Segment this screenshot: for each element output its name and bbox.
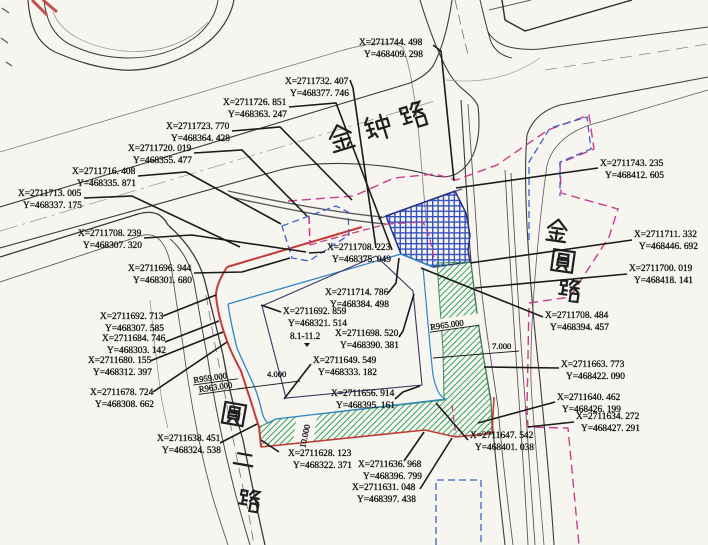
svg-text:X=2711708. 484: X=2711708. 484 bbox=[545, 311, 609, 321]
svg-text:X=2711732. 407: X=2711732. 407 bbox=[285, 77, 349, 87]
svg-text:X=2711684. 746: X=2711684. 746 bbox=[102, 334, 166, 344]
svg-text:Y=468322. 371: Y=468322. 371 bbox=[293, 461, 352, 471]
svg-text:X=2711680. 155: X=2711680. 155 bbox=[88, 356, 152, 366]
svg-text:4.000: 4.000 bbox=[267, 369, 286, 379]
svg-text:X=2711692. 713: X=2711692. 713 bbox=[100, 312, 164, 322]
svg-text:Y=468394. 457: Y=468394. 457 bbox=[550, 323, 609, 333]
svg-text:Y=468307. 585: Y=468307. 585 bbox=[105, 324, 164, 334]
svg-text:X=2711692. 859: X=2711692. 859 bbox=[283, 307, 347, 317]
svg-text:Y=468377. 746: Y=468377. 746 bbox=[290, 89, 349, 99]
svg-text:X=2711649. 549: X=2711649. 549 bbox=[313, 356, 377, 366]
svg-text:Y=468312. 397: Y=468312. 397 bbox=[93, 368, 152, 378]
svg-text:Y=468422. 090: Y=468422. 090 bbox=[566, 372, 625, 382]
svg-text:X=2711678. 724: X=2711678. 724 bbox=[90, 388, 154, 398]
svg-text:X=2711720. 019: X=2711720. 019 bbox=[128, 144, 192, 154]
svg-text:Y=468355. 477: Y=468355. 477 bbox=[133, 156, 192, 166]
svg-text:Y=468301. 680: Y=468301. 680 bbox=[133, 276, 192, 286]
svg-text:Y=468321. 514: Y=468321. 514 bbox=[288, 319, 347, 329]
svg-text:Y=468308. 662: Y=468308. 662 bbox=[95, 400, 154, 410]
svg-text:X=2711708. 223: X=2711708. 223 bbox=[327, 243, 391, 253]
svg-text:Y=468395. 161: Y=468395. 161 bbox=[336, 401, 395, 411]
svg-text:Y=468397. 438: Y=468397. 438 bbox=[357, 495, 416, 505]
svg-text:X=2711638. 451: X=2711638. 451 bbox=[157, 434, 221, 444]
svg-text:X=2711716. 408: X=2711716. 408 bbox=[72, 167, 136, 177]
svg-text:Y=468396. 799: Y=468396. 799 bbox=[363, 472, 422, 482]
svg-text:X=2711708. 239: X=2711708. 239 bbox=[78, 229, 142, 239]
svg-text:X=2711714. 786: X=2711714. 786 bbox=[325, 288, 389, 298]
svg-text:Y=468390. 381: Y=468390. 381 bbox=[340, 341, 399, 351]
svg-text:X=2711723. 770: X=2711723. 770 bbox=[166, 122, 230, 132]
svg-text:X=2711656. 914: X=2711656. 914 bbox=[331, 389, 395, 399]
svg-text:Y=468335. 871: Y=468335. 871 bbox=[77, 179, 136, 189]
svg-text:Y=468409. 298: Y=468409. 298 bbox=[364, 50, 423, 60]
svg-text:X=2711698. 520: X=2711698. 520 bbox=[335, 329, 399, 339]
svg-text:7.000: 7.000 bbox=[492, 341, 511, 351]
svg-text:Y=468418. 141: Y=468418. 141 bbox=[634, 276, 693, 286]
svg-text:Y=468375. 049: Y=468375. 049 bbox=[332, 255, 391, 265]
svg-text:X=2711631. 048: X=2711631. 048 bbox=[352, 483, 416, 493]
svg-text:X=2711711. 332: X=2711711. 332 bbox=[634, 230, 697, 240]
svg-text:Y=468333. 182: Y=468333. 182 bbox=[318, 368, 377, 378]
svg-text:X=2711744. 498: X=2711744. 498 bbox=[359, 38, 423, 48]
svg-text:Y=468427. 291: Y=468427. 291 bbox=[581, 424, 640, 434]
svg-text:X=2711640. 462: X=2711640. 462 bbox=[557, 393, 621, 403]
svg-text:Y=468364. 428: Y=468364. 428 bbox=[171, 134, 230, 144]
svg-text:Y=468307. 320: Y=468307. 320 bbox=[83, 241, 142, 251]
svg-text:X=2711696. 944: X=2711696. 944 bbox=[128, 264, 192, 274]
svg-text:X=2711713. 005: X=2711713. 005 bbox=[18, 189, 82, 199]
svg-text:Y=468401. 038: Y=468401. 038 bbox=[475, 443, 534, 453]
svg-text:Y=468363. 247: Y=468363. 247 bbox=[228, 110, 287, 120]
svg-text:Y=468446. 692: Y=468446. 692 bbox=[639, 242, 698, 252]
svg-text:Y=468324. 538: Y=468324. 538 bbox=[162, 446, 221, 456]
svg-text:X=2711700. 019: X=2711700. 019 bbox=[629, 264, 693, 274]
svg-text:X=2711647. 542: X=2711647. 542 bbox=[470, 431, 534, 441]
svg-text:Y=468412. 605: Y=468412. 605 bbox=[605, 171, 664, 181]
svg-text:X=2711628. 123: X=2711628. 123 bbox=[288, 449, 352, 459]
svg-text:Y=468337. 175: Y=468337. 175 bbox=[23, 201, 82, 211]
svg-text:8.1-11.2: 8.1-11.2 bbox=[290, 331, 321, 341]
svg-text:Y=468303. 142: Y=468303. 142 bbox=[107, 346, 166, 356]
svg-text:X=2711634. 272: X=2711634. 272 bbox=[576, 412, 640, 422]
svg-text:X=2711663. 773: X=2711663. 773 bbox=[561, 360, 625, 370]
svg-text:X=2711743. 235: X=2711743. 235 bbox=[600, 159, 664, 169]
svg-text:X=2711726. 851: X=2711726. 851 bbox=[223, 98, 287, 108]
svg-text:X=2711636. 968: X=2711636. 968 bbox=[358, 460, 422, 470]
